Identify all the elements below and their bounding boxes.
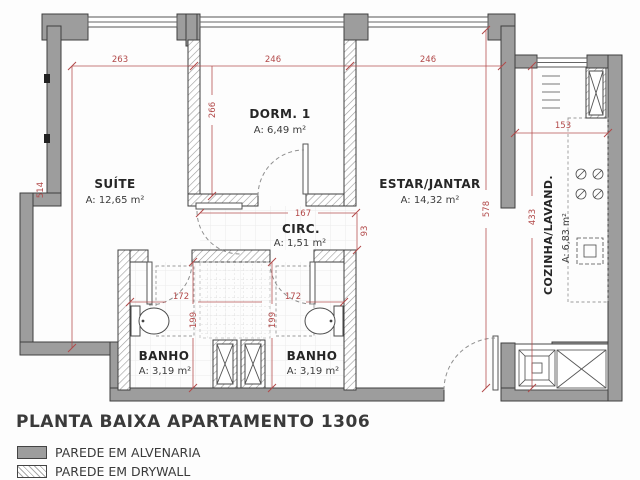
area-cozinha: A: 6,83 m² <box>561 213 572 263</box>
dim-dorm1-depth: 266 <box>208 102 218 118</box>
stove-burners <box>576 169 603 199</box>
legend: PAREDE EM ALVENARIA PAREDE EM DRYWALL <box>17 445 200 479</box>
kitchen-duct <box>586 68 606 118</box>
label-banho-esq: BANHO <box>139 349 190 363</box>
dim-cozinha-depth: 433 <box>528 209 538 225</box>
dim-banho-esq-width: 172 <box>173 292 189 302</box>
legend-item-drywall: PAREDE EM DRYWALL <box>17 464 200 479</box>
floorplan-page: 263 246 246 514 266 167 93 578 153 433 1… <box>0 0 640 480</box>
door-dorm1 <box>258 144 308 196</box>
window-dorm1 <box>200 17 344 27</box>
dim-suite-width: 263 <box>112 55 128 65</box>
area-suite: A: 12,65 m² <box>86 195 145 206</box>
label-circ: CIRC. <box>282 222 320 236</box>
legend-item-alvenaria: PAREDE EM ALVENARIA <box>17 445 200 460</box>
legend-swatch-drywall-icon <box>17 465 47 478</box>
dim-banho-dir-depth: 199 <box>268 312 278 328</box>
area-estar: A: 14,32 m² <box>401 195 460 206</box>
window-suite <box>88 17 177 27</box>
area-dorm1: A: 6,49 m² <box>254 125 306 136</box>
toilet-esq <box>131 306 169 336</box>
door-entry <box>444 336 498 390</box>
toilet-dir <box>305 306 343 336</box>
kitchen-counter <box>568 118 608 302</box>
label-suite: SUÍTE <box>94 176 135 191</box>
dim-circ-width: 167 <box>295 209 311 219</box>
dim-estar-depth: 578 <box>482 201 492 217</box>
window-estar <box>368 17 488 27</box>
dim-dorm1-width: 246 <box>265 55 281 65</box>
window-cozinha <box>537 58 587 67</box>
dim-banho-esq-depth: 199 <box>189 312 199 328</box>
water-heater <box>542 76 560 108</box>
label-banho-dir: BANHO <box>287 349 338 363</box>
dim-banho-dir-width: 172 <box>285 292 301 302</box>
label-estar: ESTAR/JANTAR <box>379 177 480 191</box>
area-banho-esq: A: 3,19 m² <box>139 366 191 377</box>
label-dorm1: DORM. 1 <box>249 107 310 121</box>
laundry-bench <box>515 342 608 390</box>
legend-label-drywall: PAREDE EM DRYWALL <box>55 464 190 479</box>
label-cozinha: COZINHA/LAVAND. <box>542 175 555 295</box>
dim-cozinha-width: 153 <box>555 121 571 131</box>
legend-label-alvenaria: PAREDE EM ALVENARIA <box>55 445 200 460</box>
area-circ: A: 1,51 m² <box>274 238 326 249</box>
area-banho-dir: A: 3,19 m² <box>287 366 339 377</box>
plan-title: PLANTA BAIXA APARTAMENTO 1306 <box>16 412 370 432</box>
dim-circ-depth: 93 <box>360 226 370 237</box>
floor-plan-drawing: 263 246 246 514 266 167 93 578 153 433 1… <box>0 0 640 480</box>
legend-swatch-alvenaria-icon <box>17 446 47 459</box>
dim-left-height: 514 <box>36 182 46 198</box>
kitchen-sink <box>577 238 603 264</box>
dim-estar-width: 246 <box>420 55 436 65</box>
